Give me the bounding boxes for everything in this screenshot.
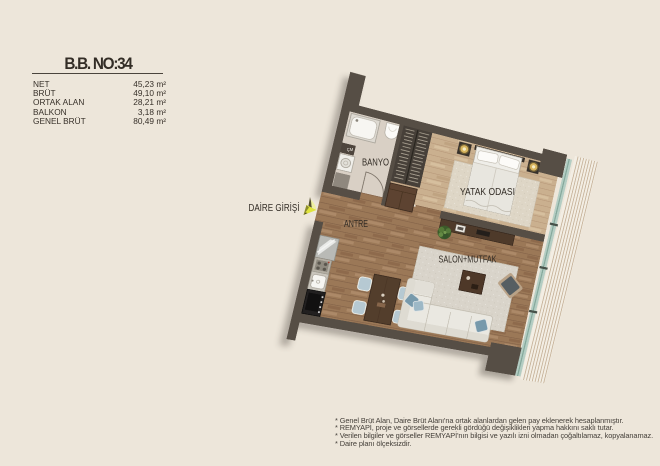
svg-text:YATAK ODASI: YATAK ODASI [460,187,515,198]
svg-text:DAİRE GİRİŞİ: DAİRE GİRİŞİ [249,201,300,214]
svg-text:SALON+MUTFAK: SALON+MUTFAK [439,255,497,266]
svg-text:ANTRE: ANTRE [344,219,368,230]
svg-text:ÇM: ÇM [347,147,354,152]
svg-text:BANYO: BANYO [362,158,389,169]
